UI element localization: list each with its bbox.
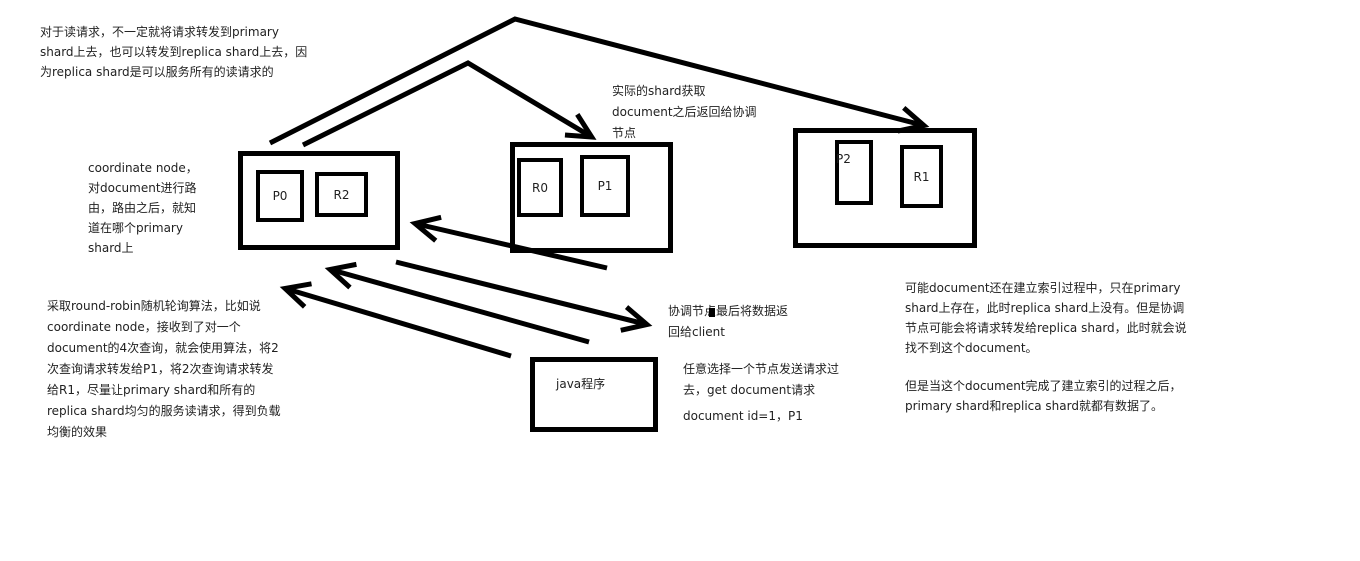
note-round-robin: 采取round-robin随机轮询算法，比如说 coordinate node，… — [47, 296, 281, 443]
shard-label-p0: P0 — [273, 189, 288, 203]
shard-label-p1: P1 — [598, 179, 613, 193]
shard-label-r1: R1 — [914, 170, 930, 184]
note-coordinate-node: coordinate node， 对document进行路 由，路由之后，就知 … — [88, 158, 198, 258]
shard-box-r0: R0 — [517, 158, 563, 217]
shard-label-r2: R2 — [334, 188, 350, 202]
shard-label-p2: P2 — [836, 152, 851, 166]
note-line: shard上去，也可以转发到replica shard上去，因 — [40, 42, 307, 62]
note-line: 次查询请求转发给P1，将2次查询请求转发 — [47, 359, 281, 380]
note-replica-sync-p2: 但是当这个document完成了建立索引的过程之后， primary shard… — [905, 376, 1182, 416]
note-line: 均衡的效果 — [47, 422, 281, 443]
note-line: 去，get document请求 — [683, 380, 839, 401]
note-doc-id: document id=1，P1 — [683, 406, 803, 426]
diagram-canvas: 对于读请求，不一定就将请求转发到primary shard上去，也可以转发到re… — [0, 0, 1360, 561]
note-replica-sync-p1: 可能document还在建立索引过程中，只在primary shard上存在，此… — [905, 278, 1187, 358]
note-line: coordinate node，接收到了对一个 — [47, 317, 281, 338]
arrow-request-to-node3 — [270, 19, 922, 143]
shard-box-r1: R1 — [900, 145, 943, 208]
note-line: 实际的shard获取 — [612, 81, 757, 102]
note-line: document id=1，P1 — [683, 406, 803, 426]
note-read-request: 对于读请求，不一定就将请求转发到primary shard上去，也可以转发到re… — [40, 22, 307, 82]
arrow-client-request-to-node1-b — [287, 289, 511, 356]
note-line: 可能document还在建立索引过程中，只在primary — [905, 278, 1187, 298]
shard-label-r0: R0 — [532, 181, 548, 195]
note-line: primary shard和replica shard就都有数据了。 — [905, 396, 1182, 416]
arrow-node1-response-to-client — [396, 262, 645, 324]
shard-box-p1: P1 — [580, 155, 630, 217]
note-line: 为replica shard是可以服务所有的读请求的 — [40, 62, 307, 82]
java-program-label: java程序 — [556, 375, 605, 392]
java-program-box: java程序 — [530, 357, 658, 432]
note-line: 道在哪个primary — [88, 218, 198, 238]
shard-box-p0: P0 — [256, 170, 304, 222]
shard-box-r2: R2 — [315, 172, 368, 217]
note-line: 但是当这个document完成了建立索引的过程之后， — [905, 376, 1182, 396]
note-line: 节点可能会将请求转发给replica shard，此时就会说 — [905, 318, 1187, 338]
note-line: 协调节点最后将数据返 — [668, 301, 788, 322]
shard-box-p2: P2 — [835, 140, 873, 205]
note-line: 任意选择一个节点发送请求过 — [683, 359, 839, 380]
arrow-request-to-node2 — [303, 63, 590, 145]
note-line: coordinate node， — [88, 158, 198, 178]
note-line: 给R1，尽量让primary shard和所有的 — [47, 380, 281, 401]
note-line: shard上存在，此时replica shard上没有。但是协调 — [905, 298, 1187, 318]
note-line: shard上 — [88, 238, 198, 258]
note-actual-shard: 实际的shard获取 document之后返回给协调 节点 — [612, 81, 757, 144]
note-line: document之后返回给协调 — [612, 102, 757, 123]
arrow-client-request-to-node1-a — [332, 270, 589, 342]
note-line: 节点 — [612, 123, 757, 144]
note-line: 对于读请求，不一定就将请求转发到primary — [40, 22, 307, 42]
note-line: 由，路由之后，就知 — [88, 198, 198, 218]
ink-dot — [709, 308, 715, 317]
note-line: 找不到这个document。 — [905, 338, 1187, 358]
note-line: 采取round-robin随机轮询算法，比如说 — [47, 296, 281, 317]
node-box-3 — [793, 128, 977, 248]
note-line: document的4次查询，就会使用算法，将2 — [47, 338, 281, 359]
note-return-client: 协调节点最后将数据返 回给client — [668, 301, 788, 343]
note-line: 回给client — [668, 322, 788, 343]
note-pick-node: 任意选择一个节点发送请求过 去，get document请求 — [683, 359, 839, 401]
note-line: replica shard均匀的服务读请求，得到负载 — [47, 401, 281, 422]
note-line: 对document进行路 — [88, 178, 198, 198]
